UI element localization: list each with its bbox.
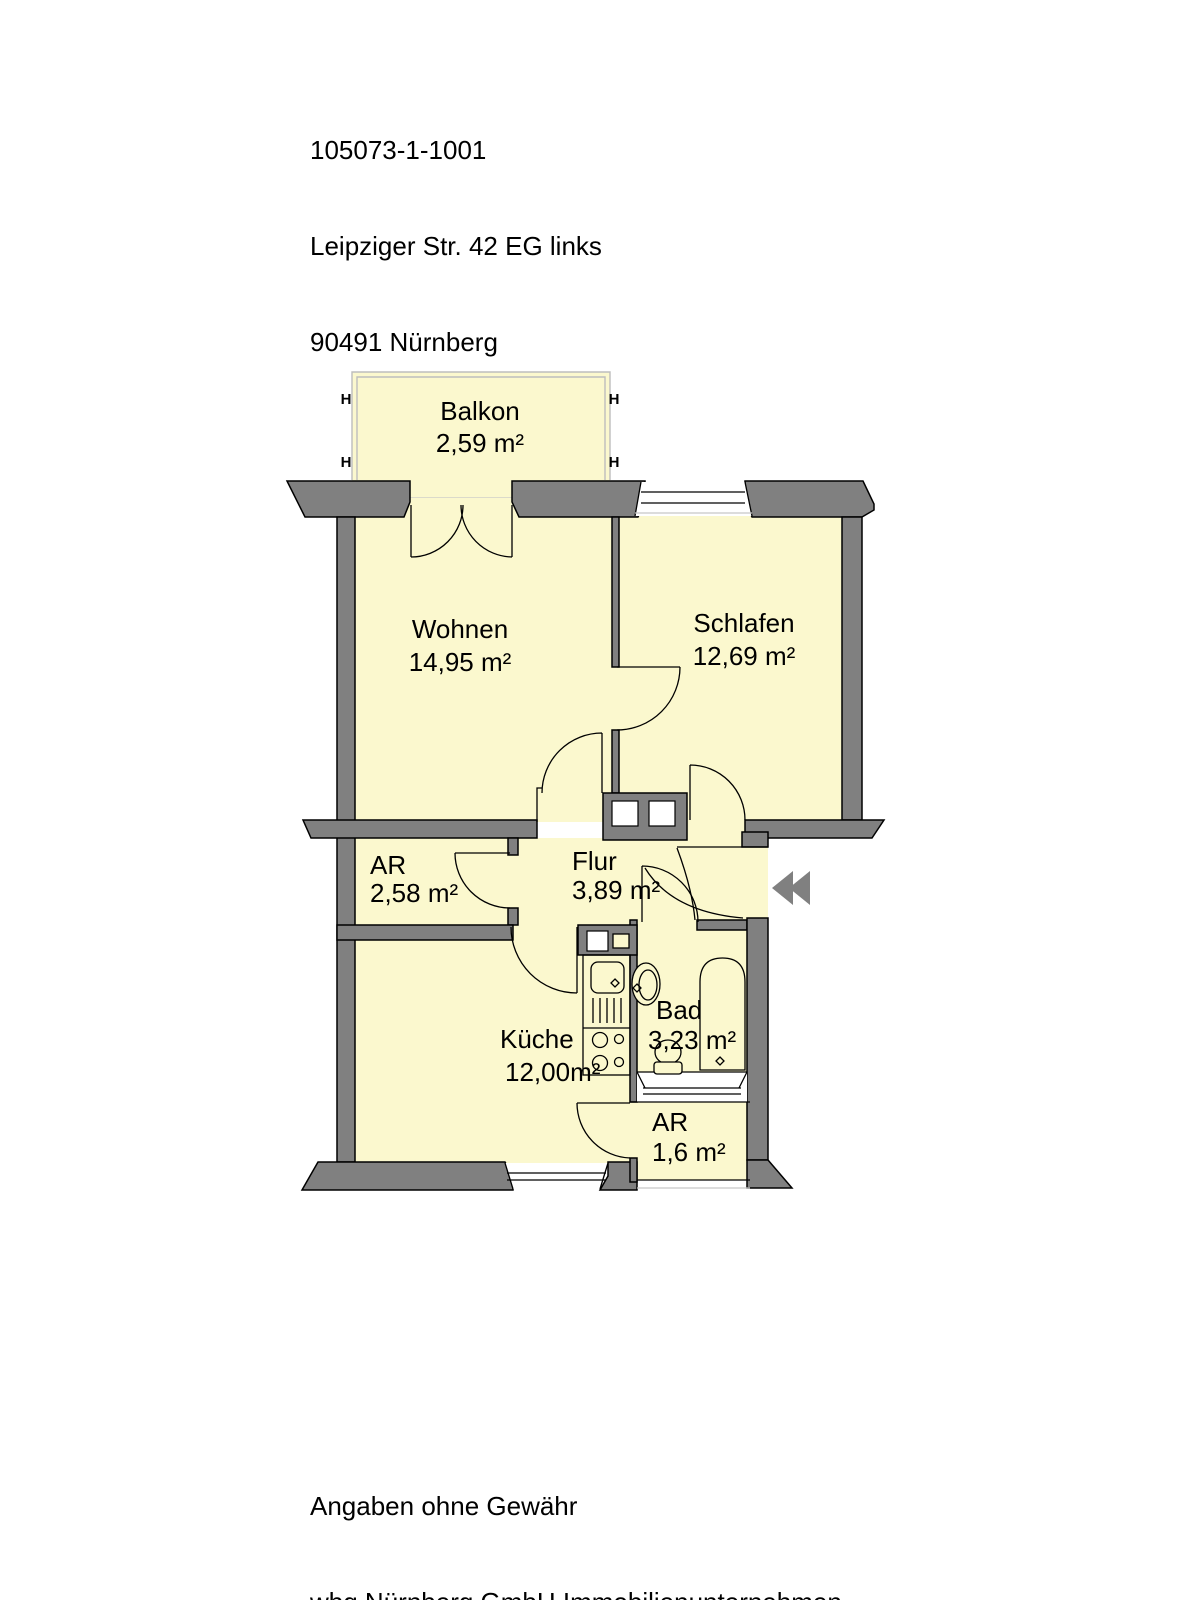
- toilet-cistern: [654, 1062, 682, 1074]
- floorplan-page: 105073-1-1001 Leipziger Str. 42 EG links…: [0, 0, 1200, 1600]
- wall-segment-wohnen-ar: [303, 820, 537, 838]
- ar-flur-area: 2,58 m²: [370, 878, 458, 908]
- shaft-flue: [649, 801, 675, 826]
- wall-segment-wohnen-schlafen-lower: [612, 730, 619, 793]
- wall-segment-bottom-right: [747, 1160, 792, 1188]
- balcony-post-marker: H: [341, 391, 352, 408]
- shaft-flue: [587, 931, 608, 951]
- schlafen-area: 12,69 m²: [693, 641, 796, 671]
- kueche-area: 12,00m²: [505, 1057, 601, 1087]
- wall-segment-top-left: [287, 481, 410, 517]
- kueche-label: Küche: [500, 1024, 574, 1054]
- wohnen-area: 14,95 m²: [409, 647, 512, 677]
- bad-area: 3,23 m²: [648, 1025, 736, 1055]
- disclaimer-text: Angaben ohne Gewähr: [310, 1490, 842, 1522]
- flur-label: Flur: [572, 846, 617, 876]
- bad-label: Bad: [656, 995, 702, 1025]
- flur-area: 3,89 m²: [572, 875, 660, 905]
- ar-unten-area: 1,6 m²: [652, 1137, 726, 1167]
- wall-segment-wohnen-schlafen-upper: [612, 517, 619, 667]
- kueche-window-opening: [505, 1163, 608, 1189]
- wohnen-label: Wohnen: [412, 614, 508, 644]
- wall-segment-ar-kueche: [337, 925, 513, 940]
- entrance-arrows-icon: [772, 871, 810, 905]
- wall-segment-entrance-jamb: [742, 832, 768, 847]
- balkon-label: Balkon: [440, 396, 520, 426]
- wall-stub-kueche-ar: [630, 1158, 637, 1182]
- schlafen-label: Schlafen: [693, 608, 794, 638]
- floor-plan: H H H H: [0, 0, 1200, 1600]
- ar-flur-label: AR: [370, 850, 406, 880]
- bad-window-opening: [637, 1072, 747, 1102]
- balkon-area: 2,59 m²: [436, 428, 524, 458]
- balcony-post-marker: H: [341, 454, 352, 471]
- wall-segment-bottom-left: [302, 1162, 513, 1190]
- shaft-flue: [612, 801, 638, 826]
- wall-segment-top-middle: [512, 481, 645, 517]
- schlafen-window-opening: [635, 482, 752, 516]
- wall-segment-top-right: [745, 481, 874, 517]
- shaft-flue: [613, 934, 629, 948]
- wall-segment-right-lower: [747, 918, 768, 1160]
- balcony-post-marker: H: [609, 454, 620, 471]
- wall-stub-ar-bottom: [508, 908, 518, 925]
- entrance-recess-floor: [677, 847, 768, 922]
- wall-segment-right: [842, 517, 862, 820]
- company-text: wbg Nürnberg GmbH Immobilienunternehmen: [310, 1586, 842, 1600]
- footer-block: Angaben ohne Gewähr wbg Nürnberg GmbH Im…: [310, 1426, 842, 1600]
- wall-segment-bad-top: [697, 920, 747, 930]
- ar-unten-label: AR: [652, 1107, 688, 1137]
- balcony-post-marker: H: [609, 391, 620, 408]
- wall-segment-left: [337, 517, 355, 1162]
